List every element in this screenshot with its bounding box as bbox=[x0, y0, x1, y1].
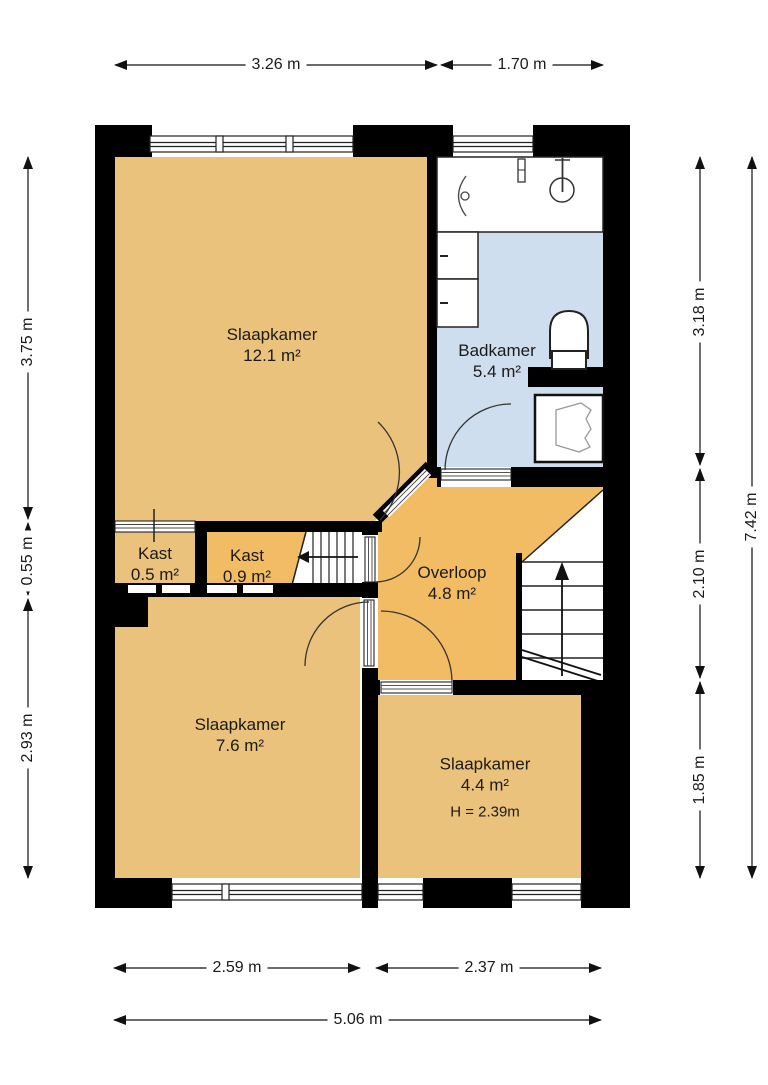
room-area: 0.5 m² bbox=[131, 564, 179, 585]
dim-label-top-1: 3.26 m bbox=[246, 56, 307, 74]
window-icon bbox=[172, 884, 362, 900]
room-height-note: H = 2.39m bbox=[440, 802, 531, 823]
room-name: Slaapkamer bbox=[195, 715, 286, 734]
room-name: Slaapkamer bbox=[227, 325, 318, 344]
dim-label-bottom-1: 2.59 m bbox=[207, 959, 268, 977]
right-wall-upper bbox=[603, 125, 630, 695]
room-label-slaapkamer-12: Slaapkamer 12.1 m² bbox=[227, 324, 318, 366]
room-label-kast-05: Kast 0.5 m² bbox=[131, 543, 179, 585]
room-name: Kast bbox=[230, 546, 264, 565]
shower-icon bbox=[535, 395, 603, 462]
dim-label-bottom-2: 2.37 m bbox=[459, 959, 520, 977]
room-label-slaapkamer-76: Slaapkamer 7.6 m² bbox=[195, 714, 286, 756]
stair-stringer-wall bbox=[516, 553, 522, 682]
room-label-overloop: Overloop 4.8 m² bbox=[418, 562, 487, 604]
dim-label-left-3: 2.93 m bbox=[19, 708, 37, 769]
room-label-slaapkamer-44: Slaapkamer 4.4 m² H = 2.39m bbox=[440, 754, 531, 823]
dim-label-left-1: 3.75 m bbox=[19, 312, 37, 373]
room-area: 7.6 m² bbox=[195, 735, 286, 756]
room-label-badkamer: Badkamer 5.4 m² bbox=[458, 340, 535, 382]
toilet-icon bbox=[550, 311, 588, 369]
dim-label-top-2: 1.70 m bbox=[492, 56, 553, 74]
room-label-kast-09: Kast 0.9 m² bbox=[223, 545, 271, 587]
room-name: Slaapkamer bbox=[440, 755, 531, 774]
window-icon bbox=[453, 136, 533, 152]
floorplan-svg bbox=[0, 0, 768, 1085]
room-area: 0.9 m² bbox=[223, 566, 271, 587]
dim-label-bottom-total: 5.06 m bbox=[328, 1011, 389, 1029]
wall-bedroom-bathroom bbox=[427, 125, 437, 478]
window-icon bbox=[378, 884, 423, 900]
cabinet-icon bbox=[437, 232, 478, 327]
room-area: 4.4 m² bbox=[440, 775, 531, 796]
dim-label-right-3: 1.85 m bbox=[691, 750, 709, 811]
window-icon bbox=[512, 884, 581, 900]
dim-label-right-2: 2.10 m bbox=[691, 544, 709, 605]
room-area: 5.4 m² bbox=[458, 361, 535, 382]
room-name: Badkamer bbox=[458, 341, 535, 360]
dim-label-right-total: 7.42 m bbox=[743, 487, 761, 548]
room-name: Overloop bbox=[418, 563, 487, 582]
dim-label-right-1: 3.18 m bbox=[691, 282, 709, 343]
room-area: 12.1 m² bbox=[227, 345, 318, 366]
left-wall bbox=[95, 125, 115, 908]
right-wall-lower bbox=[581, 680, 630, 908]
dim-label-left-2: 0.55 m bbox=[19, 531, 37, 592]
wall-kast-divider bbox=[195, 521, 207, 585]
room-name: Kast bbox=[138, 544, 172, 563]
floorplan-canvas: Slaapkamer 12.1 m² Badkamer 5.4 m² Kast … bbox=[0, 0, 768, 1085]
room-area: 4.8 m² bbox=[418, 583, 487, 604]
window-icon bbox=[150, 136, 353, 152]
bathtub-icon bbox=[437, 157, 603, 232]
